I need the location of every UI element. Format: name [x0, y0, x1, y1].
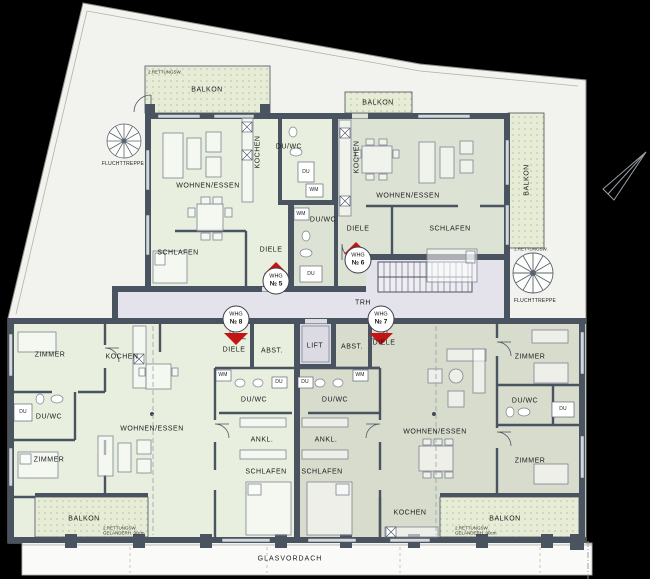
floorplan-drawing [0, 0, 650, 579]
fixture-label-wm-whg6: WM [296, 211, 305, 217]
badge-whg7-line2: № 7 [375, 318, 388, 326]
room-label-duwc-links-whg8: DU/WC [36, 414, 62, 421]
badge-whg5-line1: WHG [269, 274, 282, 281]
badge-whg8-line1: WHG [229, 312, 242, 319]
room-label-duwc-rechts-whg7: DU/WC [512, 398, 538, 405]
room-label-duwc-mitte-whg8: DU/WC [241, 397, 267, 404]
room-label-duwc-whg6: DU/WC [310, 217, 336, 224]
badge-whg7-line1: WHG [374, 312, 387, 319]
fixture-label-wm-whg5: WM [309, 187, 318, 193]
room-label-diele-whg6: DIELE [347, 226, 370, 233]
apartment-badge-whg5: WHG № 5 [263, 268, 290, 295]
room-label-kochen-whg5: KOCHEN [255, 136, 262, 169]
label-glasvordach: GLASVORDACH [258, 556, 323, 563]
room-label-schlafen-whg8: SCHLAFEN [245, 469, 286, 476]
badge-whg6-line1: WHG [351, 253, 364, 260]
room-label-diele-whg8: DIELE [223, 347, 246, 354]
label-lift: LIFT [307, 343, 323, 350]
fixture-label-du-mitte-whg8: DU [275, 379, 283, 385]
room-label-wohnen-whg8: WOHNEN/ESSEN [120, 426, 184, 433]
fixture-label-du-rechts-whg7: DU [559, 406, 567, 412]
label-fluchttreppe-left: FLUCHTTREPPE [102, 161, 144, 167]
room-label-zimmer-oben-whg7: ZIMMER [515, 354, 546, 361]
room-label-diele-whg7: DIELE [373, 340, 396, 347]
fixture-label-wm-whg8: WM [218, 372, 227, 378]
room-label-wohnen-whg5: WOHNEN/ESSEN [176, 183, 240, 190]
fixture-label-du-links-whg8: DU [19, 409, 27, 415]
fixture-label-du-whg5: DU [302, 169, 310, 175]
room-label-ankl-whg8: ANKL. [251, 437, 274, 444]
fixture-label-du-whg6: DU [307, 271, 315, 277]
note-gelaender-whg8-line2: GELÄNDERH. 90cm [103, 531, 145, 536]
room-label-schlafen-whg7: SCHLAFEN [301, 469, 342, 476]
room-label-duwc-mitte-whg7: DU/WC [322, 397, 348, 404]
room-label-kochen-whg6: KOCHEN [354, 141, 361, 174]
badge-whg8-line2: № 8 [230, 318, 243, 326]
badge-whg5-line2: № 5 [270, 280, 283, 288]
apartment-badge-whg8: WHG № 8 [223, 306, 250, 333]
room-label-diele-whg5: DIELE [260, 247, 283, 254]
fixture-label-wm-whg7: WM [355, 372, 364, 378]
room-label-balkon-whg5: BALKON [191, 87, 222, 94]
room-label-schlafen-whg6: SCHLAFEN [429, 226, 470, 233]
note-gelaender-whg7-line2: GELÄNDERH. 90cm [455, 531, 497, 536]
room-label-kochen-whg8: KOCHEN [106, 354, 139, 361]
label-trh: TRH [355, 300, 371, 307]
apartment-badge-whg7: WHG № 7 [368, 306, 395, 333]
room-label-balkon-top-whg6: BALKON [362, 100, 393, 107]
room-label-zimmer-unten-whg8: ZIMMER [34, 457, 65, 464]
room-label-ankl-whg7: ANKL. [315, 437, 338, 444]
room-label-zimmer-oben-whg8: ZIMMER [35, 352, 66, 359]
badge-whg6-line2: № 6 [352, 259, 365, 267]
room-label-wohnen-whg7: WOHNEN/ESSEN [403, 429, 467, 436]
room-label-abst-whg8: ABST. [261, 348, 283, 355]
room-label-balkon-whg8: BALKON [68, 516, 99, 523]
room-label-balkon-whg7: BALKON [489, 516, 520, 523]
floorplan-canvas: BALKON 2.RETTUNGSW. KOCHEN DU/WC DU WM W… [0, 0, 650, 579]
apartment-badge-whg6: WHG № 6 [345, 247, 372, 274]
spiral-stair-left-icon [107, 124, 141, 158]
room-label-wohnen-whg6: WOHNEN/ESSEN [376, 193, 440, 200]
room-label-duwc-whg5: DU/WC [276, 144, 302, 151]
fixture-label-du-mitte-whg7: DU [301, 379, 309, 385]
room-label-schlafen-whg5: SCHLAFEN [157, 250, 198, 257]
room-label-zimmer-unten-whg7: ZIMMER [515, 458, 546, 465]
room-label-balkon-right-whg6: BALKON [524, 164, 531, 195]
label-fluchttreppe-right: FLUCHTTREPPE [514, 298, 556, 304]
room-label-kochen-whg7: KOCHEN [394, 510, 427, 517]
note-rettungsweg-whg5: 2.RETTUNGSW. [148, 70, 182, 75]
note-rettungsweg-right: 2.RETTUNGSW. [514, 247, 548, 252]
room-label-abst-whg7: ABST. [341, 344, 363, 351]
spiral-stair-right-icon [513, 253, 553, 293]
north-arrow-icon [603, 152, 646, 200]
